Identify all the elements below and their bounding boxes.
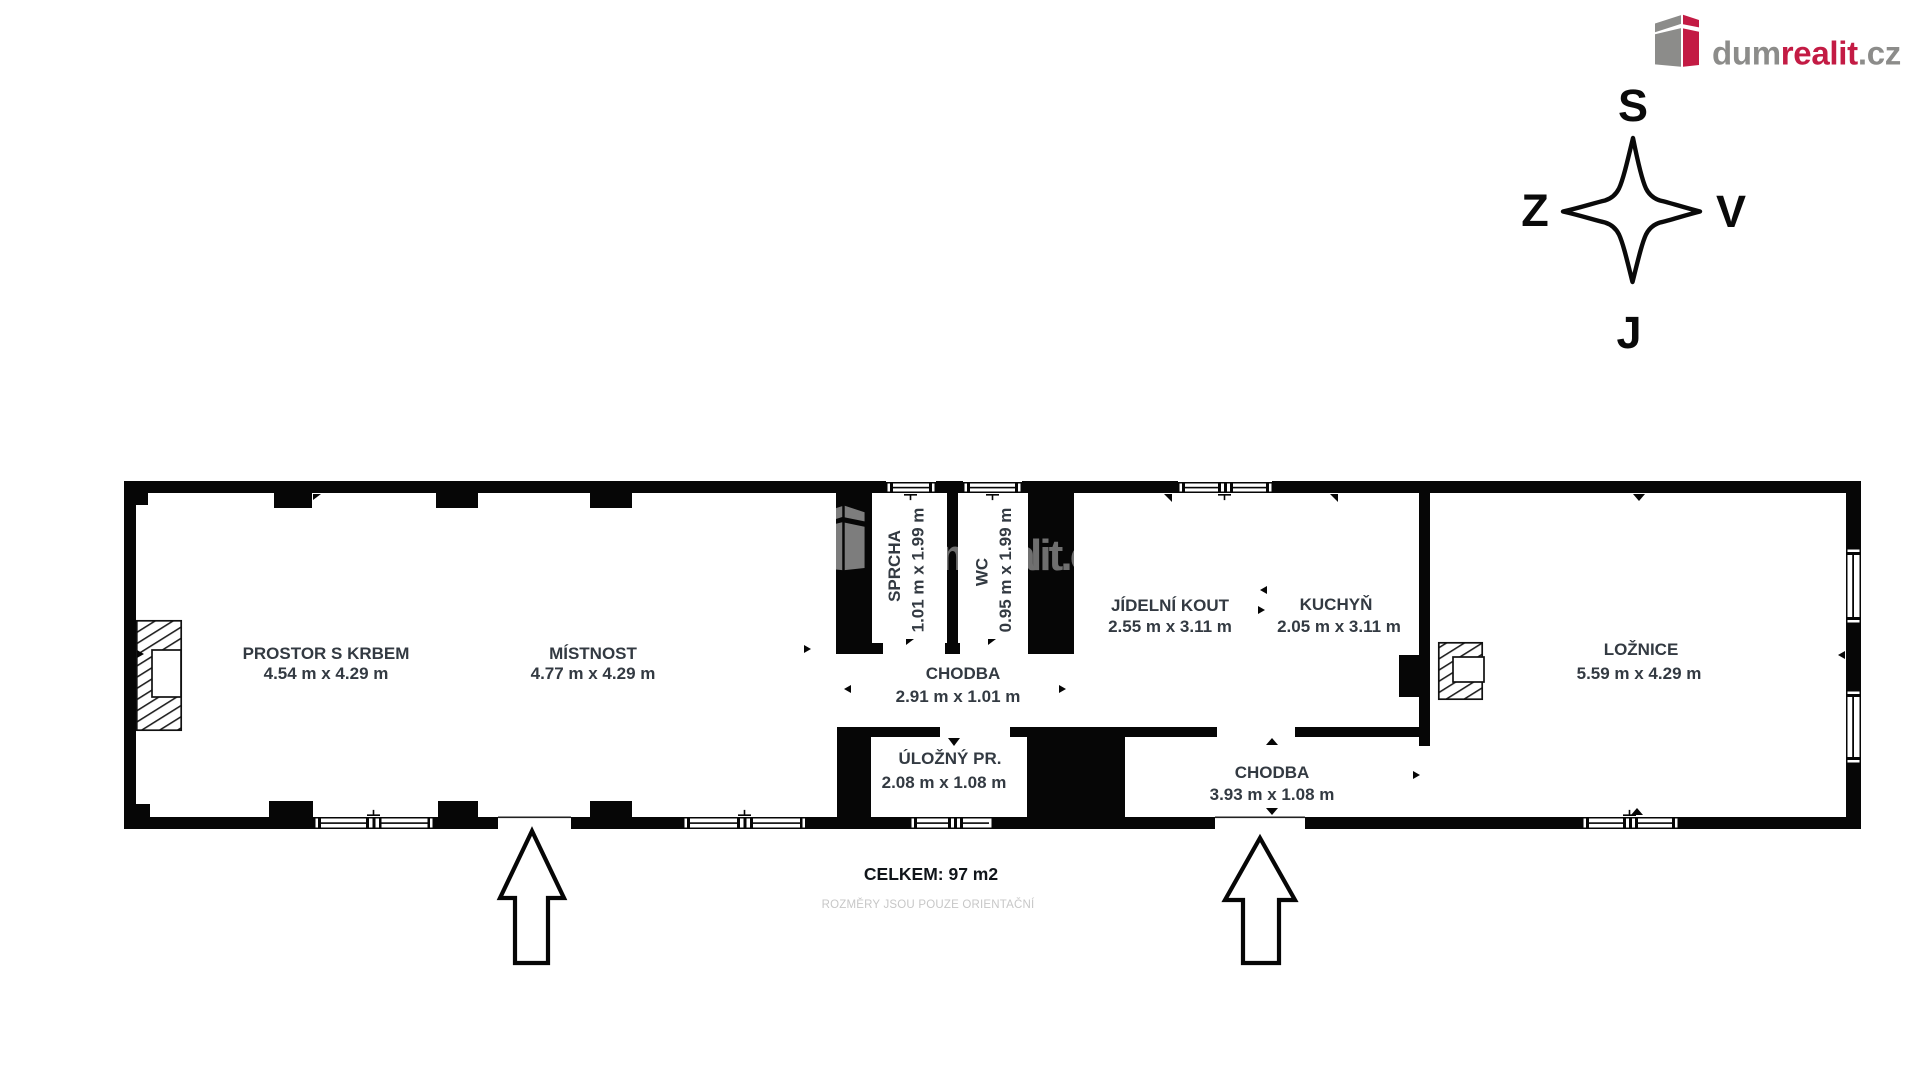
svg-text:PROSTOR S KRBEM: PROSTOR S KRBEM	[243, 644, 410, 663]
svg-text:KUCHYŇ: KUCHYŇ	[1300, 595, 1373, 614]
svg-text:V: V	[1716, 186, 1746, 237]
svg-text:S: S	[1618, 80, 1648, 131]
svg-text:CELKEM: 97 m2: CELKEM: 97 m2	[864, 864, 998, 884]
svg-text:Z: Z	[1521, 185, 1549, 236]
svg-text:WC: WC	[973, 558, 992, 586]
svg-text:2.55 m x 3.11 m: 2.55 m x 3.11 m	[1108, 617, 1232, 636]
svg-text:MÍSTNOST: MÍSTNOST	[549, 644, 637, 663]
svg-text:0.95 m x 1.99 m: 0.95 m x 1.99 m	[996, 508, 1015, 633]
svg-text:LOŽNICE: LOŽNICE	[1604, 640, 1679, 659]
svg-text:JÍDELNÍ KOUT: JÍDELNÍ KOUT	[1111, 596, 1230, 615]
svg-text:J: J	[1616, 307, 1641, 358]
svg-text:SPRCHA: SPRCHA	[885, 530, 904, 602]
svg-text:ROZMĚRY JSOU POUZE ORIENTAČNÍ: ROZMĚRY JSOU POUZE ORIENTAČNÍ	[822, 898, 1035, 911]
svg-text:dumrealit.cz: dumrealit.cz	[1712, 35, 1901, 72]
svg-text:5.59 m x 4.29 m: 5.59 m x 4.29 m	[1577, 664, 1702, 683]
svg-text:2.05 m x 3.11 m: 2.05 m x 3.11 m	[1277, 617, 1401, 636]
svg-text:3.93 m x 1.08 m: 3.93 m x 1.08 m	[1210, 785, 1335, 804]
svg-text:4.77 m x 4.29 m: 4.77 m x 4.29 m	[531, 664, 656, 683]
svg-text:CHODBA: CHODBA	[926, 664, 1001, 683]
svg-text:1.01 m x 1.99 m: 1.01 m x 1.99 m	[909, 508, 928, 633]
svg-text:2.91 m x 1.01 m: 2.91 m x 1.01 m	[896, 687, 1021, 706]
svg-text:4.54 m x 4.29 m: 4.54 m x 4.29 m	[264, 664, 389, 683]
svg-text:2.08 m x 1.08 m: 2.08 m x 1.08 m	[882, 773, 1007, 792]
svg-text:CHODBA: CHODBA	[1235, 763, 1310, 782]
svg-text:ÚLOŽNÝ PR.: ÚLOŽNÝ PR.	[899, 749, 1002, 768]
